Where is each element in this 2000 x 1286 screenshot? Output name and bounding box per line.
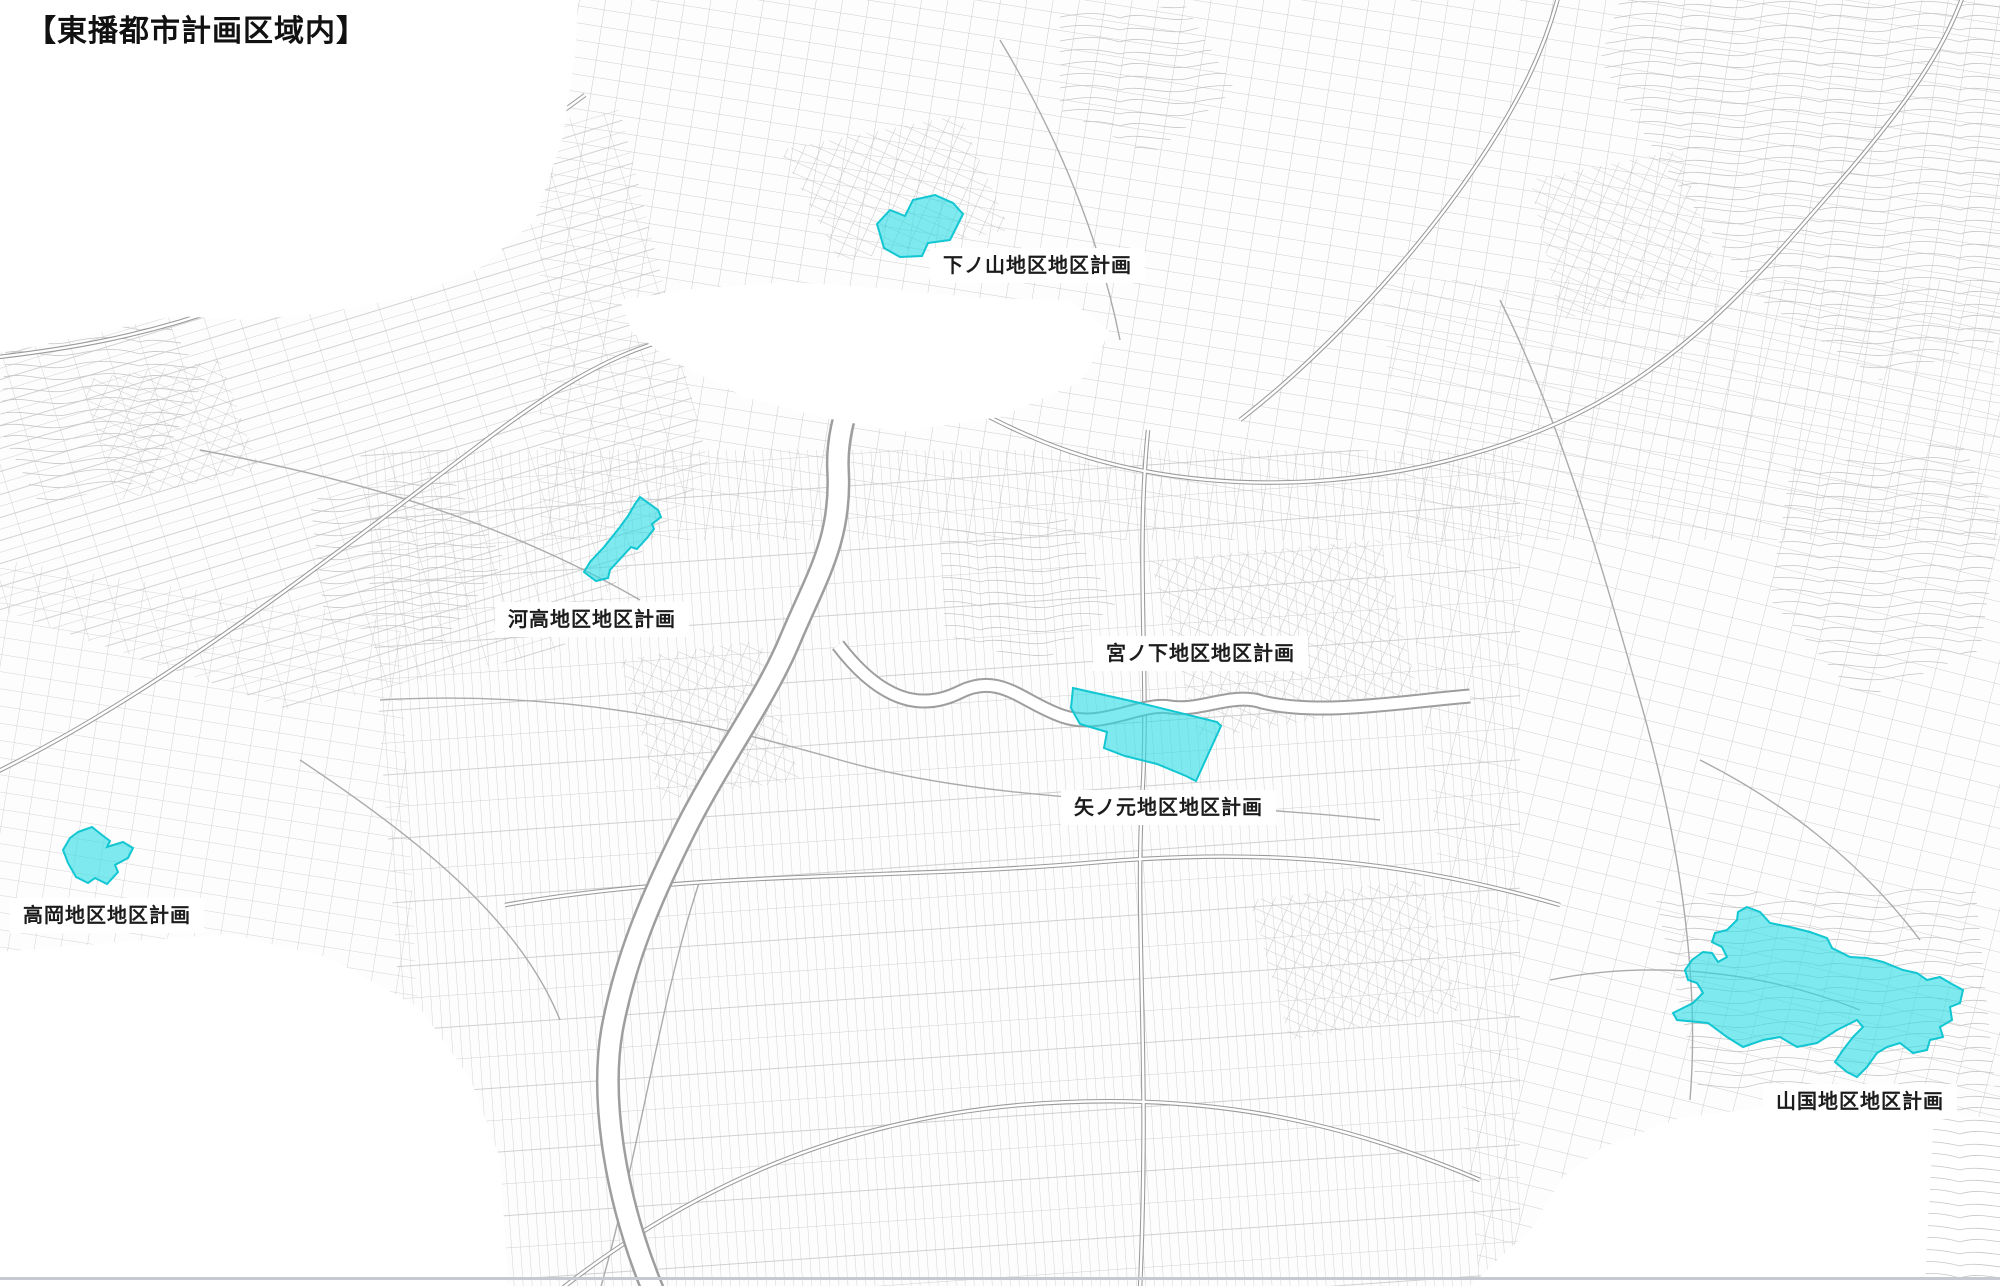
label-kawataka: 河高地区地区計画 [495,602,689,637]
label-yamakuni: 山国地区地区計画 [1763,1084,1957,1119]
label-yanomoto: 矢ノ元地区地区計画 [1061,790,1276,825]
page-title: 【東播都市計画区域内】 [26,6,367,50]
label-miyanoshita: 宮ノ下地区地区計画 [1093,636,1308,671]
label-takaoka: 高岡地区地区計画 [10,898,204,933]
map-bottom-border [0,1277,2000,1280]
label-shimonoyama: 下ノ山地区地区計画 [930,248,1145,283]
base-map-canvas [0,0,2000,1286]
planning-map: 【東播都市計画区域内】 下ノ山地区地区計画 河高地区地区計画 宮ノ下地区地区計画… [0,0,2000,1286]
